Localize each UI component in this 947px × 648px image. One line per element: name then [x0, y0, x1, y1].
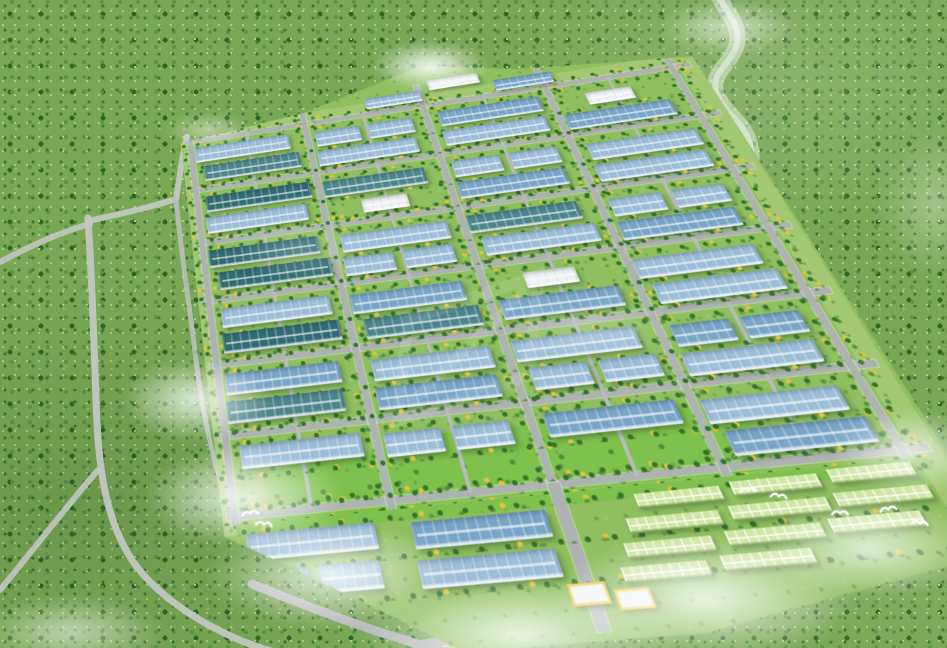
bird — [831, 508, 849, 517]
industrial-park-aerial-view — [0, 0, 947, 648]
bird — [911, 517, 930, 528]
admin-building — [566, 581, 612, 607]
bird — [739, 484, 758, 495]
admin-building — [613, 586, 657, 610]
bird — [255, 518, 274, 529]
